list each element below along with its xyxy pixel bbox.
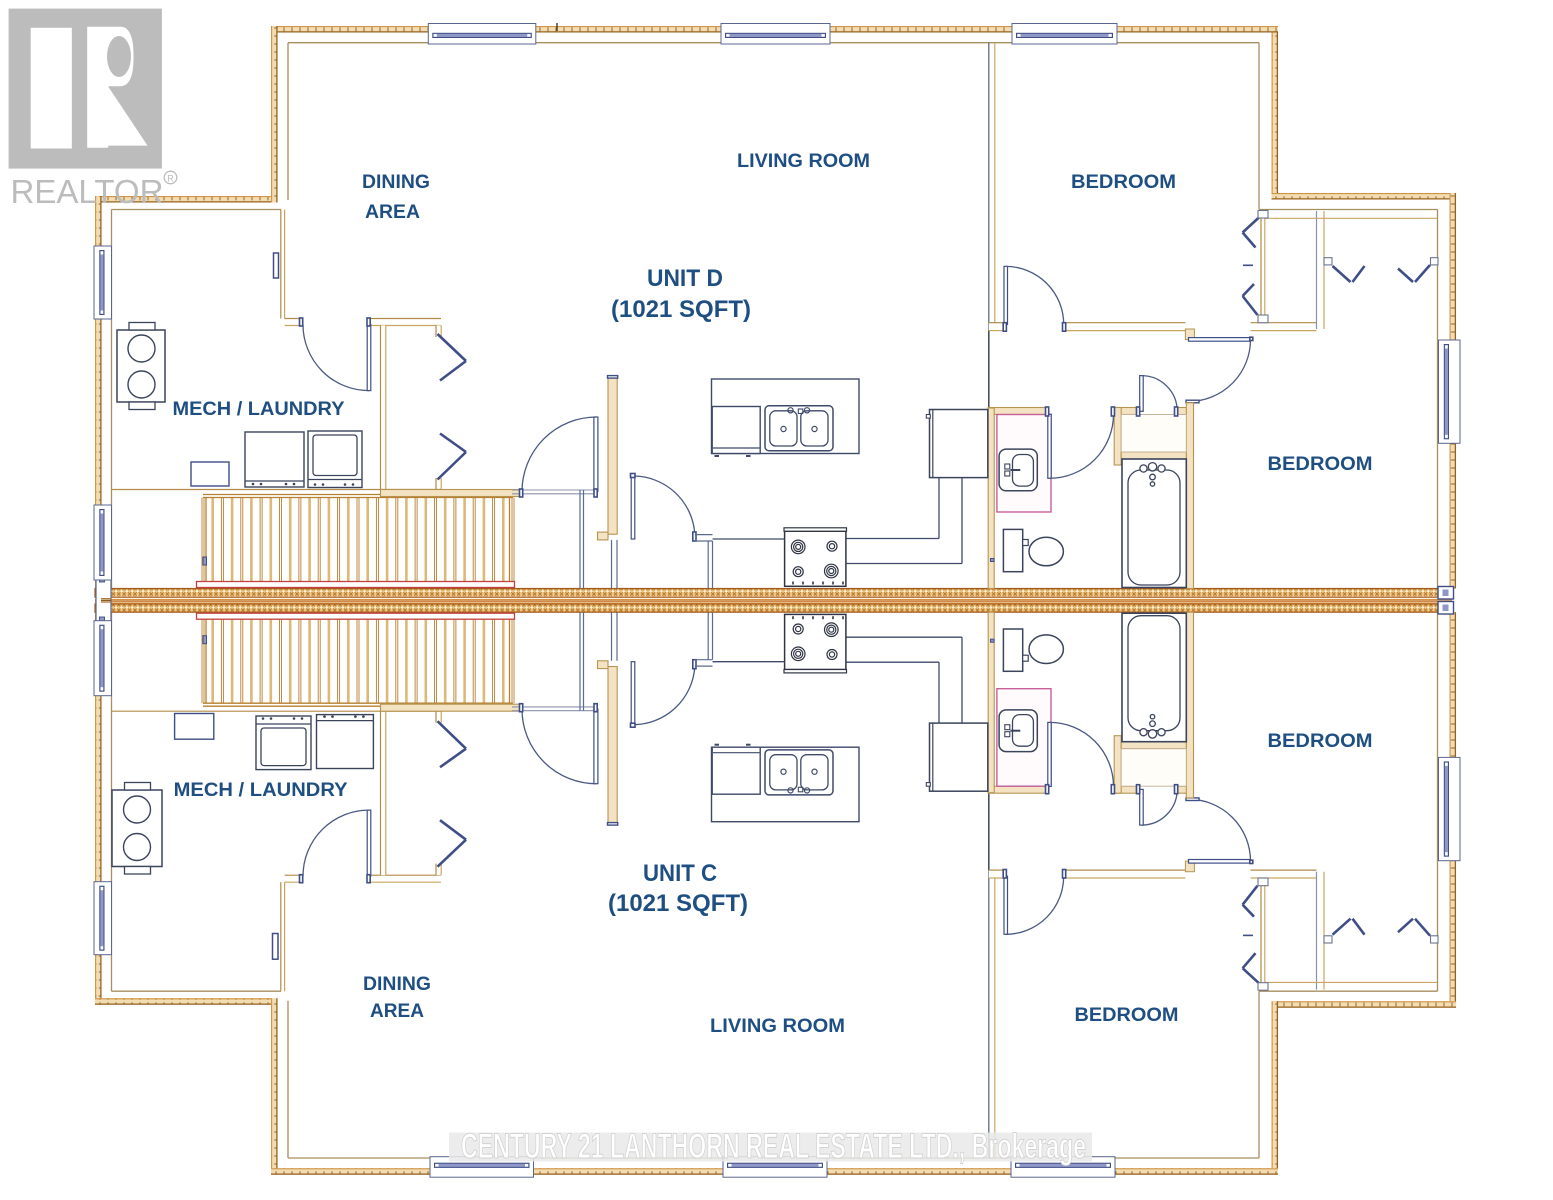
svg-text:CENTURY 21 LANTHORN REAL ESTAT: CENTURY 21 LANTHORN REAL ESTATE LTD., Br… [461, 1127, 1086, 1166]
svg-text:DINING: DINING [363, 974, 431, 995]
svg-text:REALTOR: REALTOR [11, 173, 164, 210]
svg-text:MECH / LAUNDRY: MECH / LAUNDRY [173, 399, 345, 420]
svg-text:AREA: AREA [365, 202, 420, 223]
svg-text:UNIT D: UNIT D [647, 265, 723, 292]
svg-text:DINING: DINING [362, 172, 430, 193]
svg-text:LIVING ROOM: LIVING ROOM [710, 1016, 845, 1037]
svg-text:AREA: AREA [370, 1001, 424, 1022]
svg-text:UNIT C: UNIT C [643, 860, 717, 887]
svg-text:LIVING ROOM: LIVING ROOM [737, 151, 870, 172]
svg-text:BEDROOM: BEDROOM [1075, 1005, 1179, 1026]
svg-text:MECH / LAUNDRY: MECH / LAUNDRY [174, 780, 348, 801]
svg-text:BEDROOM: BEDROOM [1268, 454, 1373, 475]
svg-text:BEDROOM: BEDROOM [1268, 731, 1373, 752]
svg-text:BEDROOM: BEDROOM [1071, 172, 1176, 193]
svg-text:(1021 SQFT): (1021 SQFT) [608, 890, 748, 917]
svg-text:R: R [167, 174, 174, 184]
svg-text:(1021 SQFT): (1021 SQFT) [611, 296, 751, 323]
